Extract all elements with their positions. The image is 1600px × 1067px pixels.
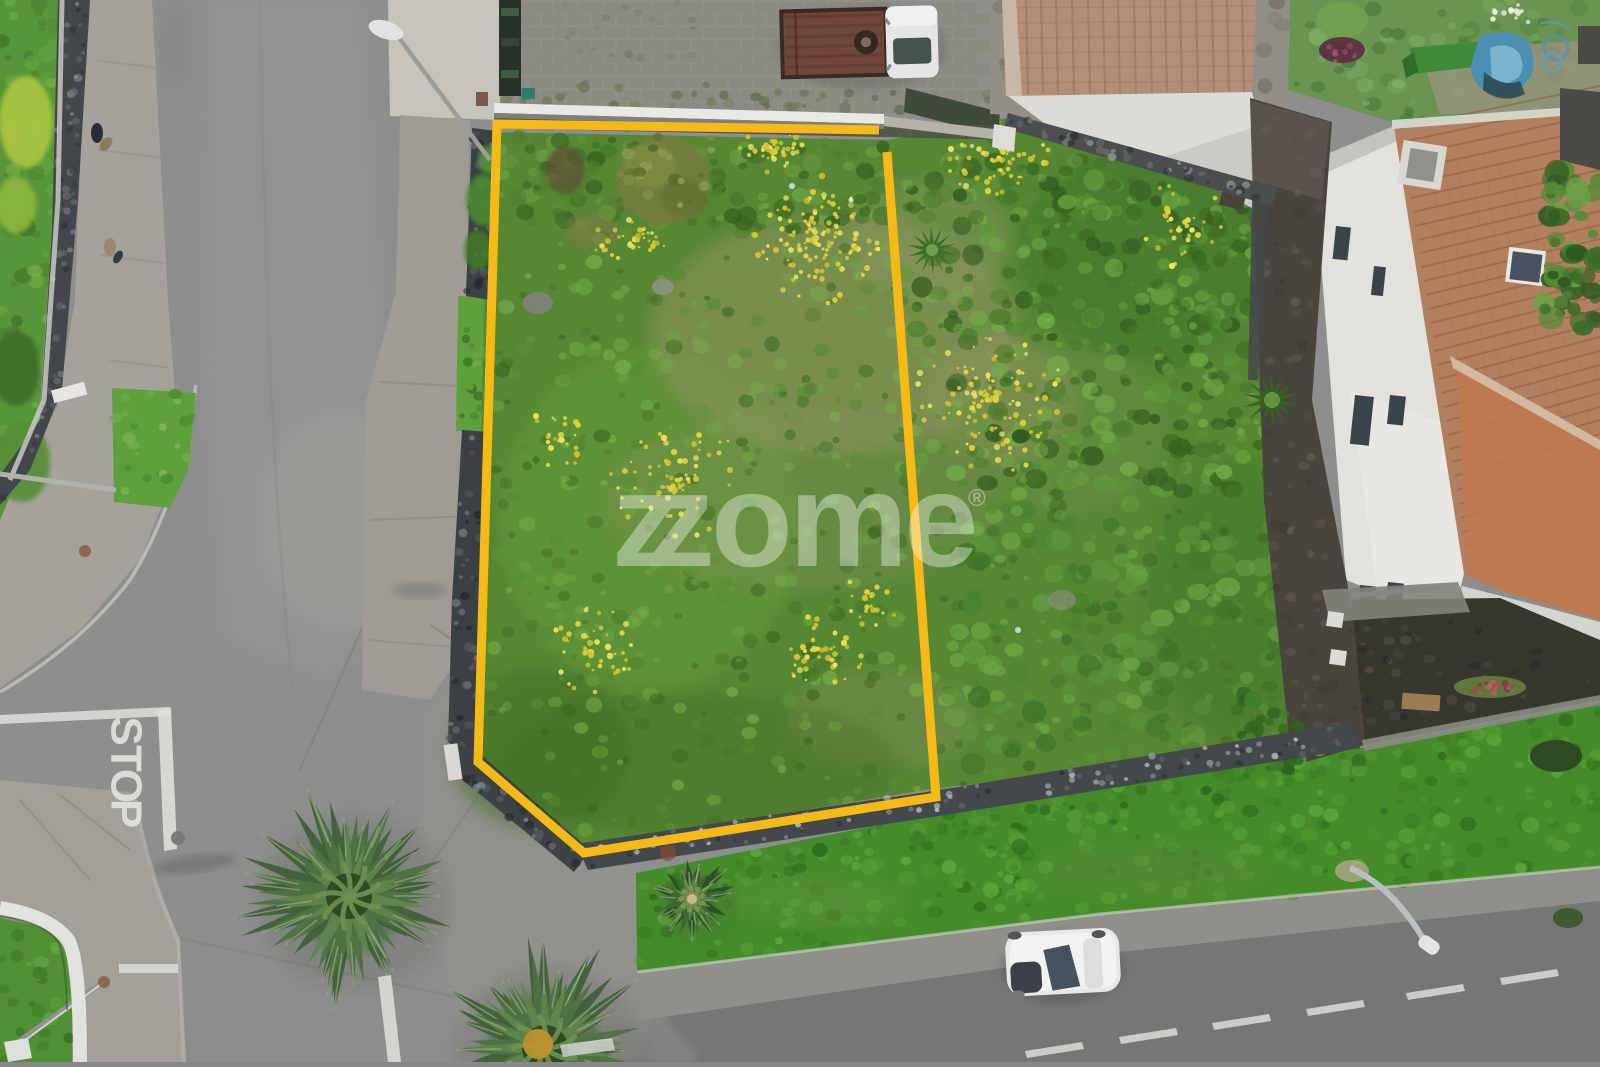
svg-text:S: S [102, 716, 151, 745]
svg-text:®: ® [968, 485, 986, 512]
svg-text:P: P [102, 799, 151, 828]
svg-text:zome: zome [648, 446, 975, 595]
